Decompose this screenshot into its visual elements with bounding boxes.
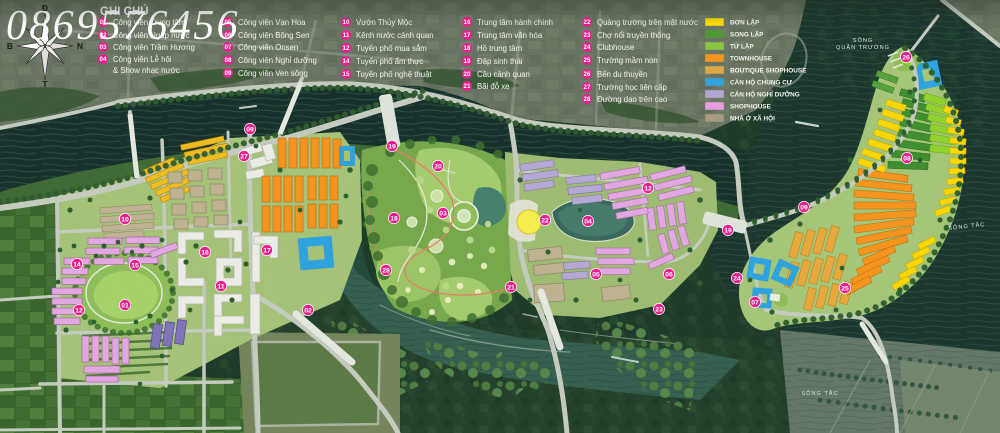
svg-text:QUẬN TRƯỜNG: QUẬN TRƯỜNG xyxy=(836,44,890,51)
svg-text:18: 18 xyxy=(390,216,398,223)
svg-text:Tuyến phố nghệ thuật: Tuyến phố nghệ thuật xyxy=(356,70,432,79)
svg-text:12: 12 xyxy=(644,186,652,193)
svg-text:06: 06 xyxy=(665,272,673,279)
svg-text:21: 21 xyxy=(507,285,515,292)
svg-text:04: 04 xyxy=(100,56,107,63)
svg-text:12: 12 xyxy=(75,308,83,315)
svg-text:14: 14 xyxy=(343,58,350,65)
svg-text:20: 20 xyxy=(464,71,471,78)
svg-text:26: 26 xyxy=(584,71,591,78)
svg-text:SONG LẬP: SONG LẬP xyxy=(730,30,764,39)
svg-text:24: 24 xyxy=(733,276,741,283)
svg-text:Công viên Ven sông: Công viên Ven sông xyxy=(238,69,308,78)
svg-text:Công viên Nghỉ dưỡng: Công viên Nghỉ dưỡng xyxy=(238,56,317,65)
svg-text:NHÀ Ở XÃ HỘI: NHÀ Ở XÃ HỘI xyxy=(730,114,775,123)
svg-text:Đập sinh thái: Đập sinh thái xyxy=(477,57,523,66)
svg-text:Chợ nổi truyền thống: Chợ nổi truyền thống xyxy=(597,31,670,40)
svg-text:CĂN HỘ CHUNG CƯ: CĂN HỘ CHUNG CƯ xyxy=(730,78,793,87)
svg-text:09: 09 xyxy=(800,205,808,212)
svg-text:14: 14 xyxy=(73,262,81,269)
svg-text:Tuyến phố ẩm thực: Tuyến phố ẩm thực xyxy=(356,57,423,66)
svg-text:09: 09 xyxy=(246,127,254,134)
svg-text:Trường mầm non: Trường mầm non xyxy=(597,56,658,65)
svg-text:10: 10 xyxy=(121,217,129,224)
svg-text:23: 23 xyxy=(655,307,663,314)
svg-text:T: T xyxy=(42,79,48,89)
svg-text:Hồ trung tâm: Hồ trung tâm xyxy=(477,44,522,53)
svg-text:Trường học liên cấp: Trường học liên cấp xyxy=(597,83,668,92)
svg-text:TỨ LẬP: TỨ LẬP xyxy=(730,42,754,51)
svg-text:09: 09 xyxy=(225,70,232,77)
svg-text:08: 08 xyxy=(225,57,232,64)
svg-text:Cầu cảnh quan: Cầu cảnh quan xyxy=(477,70,530,79)
svg-text:27: 27 xyxy=(240,154,248,161)
svg-text:BOUTIQUE SHOPHOUSE: BOUTIQUE SHOPHOUSE xyxy=(730,68,807,75)
svg-text:28: 28 xyxy=(382,268,390,275)
svg-text:07: 07 xyxy=(751,300,759,307)
svg-text:SÔNG TẮC: SÔNG TẮC xyxy=(801,389,838,397)
svg-text:11: 11 xyxy=(217,284,224,291)
svg-text:16: 16 xyxy=(201,250,209,257)
svg-text:SHOPHOUSE: SHOPHOUSE xyxy=(730,104,772,111)
svg-text:17: 17 xyxy=(263,248,271,255)
svg-text:08: 08 xyxy=(903,156,911,163)
svg-text:25: 25 xyxy=(841,286,849,293)
svg-text:18: 18 xyxy=(464,45,471,52)
svg-text:17: 17 xyxy=(464,32,471,39)
svg-text:& Show nhạc nước: & Show nhạc nước xyxy=(113,66,180,75)
svg-text:Công viên Lễ hội: Công viên Lễ hội xyxy=(113,55,172,64)
svg-text:Trung tâm văn hóa: Trung tâm văn hóa xyxy=(477,31,543,40)
svg-text:15: 15 xyxy=(343,71,350,78)
svg-text:Bãi đỗ xe: Bãi đỗ xe xyxy=(477,82,510,91)
svg-text:01: 01 xyxy=(121,303,129,310)
svg-text:19: 19 xyxy=(724,228,732,235)
svg-text:11: 11 xyxy=(343,32,350,39)
svg-text:Công viên Bông Sen: Công viên Bông Sen xyxy=(238,31,310,40)
svg-text:03: 03 xyxy=(439,211,447,218)
svg-text:24: 24 xyxy=(584,44,591,51)
svg-text:19: 19 xyxy=(464,58,471,65)
svg-text:22: 22 xyxy=(541,218,549,225)
svg-text:04: 04 xyxy=(584,219,592,226)
svg-text:20: 20 xyxy=(434,164,442,171)
svg-text:27: 27 xyxy=(584,84,591,91)
svg-text:Clubhouse: Clubhouse xyxy=(597,43,634,52)
svg-text:23: 23 xyxy=(584,32,591,39)
svg-text:TOWNHOUSE: TOWNHOUSE xyxy=(730,56,773,63)
svg-text:Công viên Onsen: Công viên Onsen xyxy=(238,43,298,52)
svg-text:Tuyến phố mua sắm: Tuyến phố mua sắm xyxy=(356,44,427,53)
svg-text:15: 15 xyxy=(131,263,139,270)
svg-text:Bến du thuyền: Bến du thuyền xyxy=(597,70,647,79)
svg-text:SÔNG: SÔNG xyxy=(853,37,873,44)
svg-text:Kênh nước cảnh quan: Kênh nước cảnh quan xyxy=(356,31,434,40)
svg-text:05: 05 xyxy=(592,272,600,279)
svg-text:12: 12 xyxy=(343,45,350,52)
svg-text:25: 25 xyxy=(584,57,591,64)
svg-text:Đường dạo trên cao: Đường dạo trên cao xyxy=(597,95,668,104)
svg-text:CĂN HỘ NGHỈ DƯỠNG: CĂN HỘ NGHỈ DƯỠNG xyxy=(730,90,800,99)
svg-text:02: 02 xyxy=(304,308,312,315)
svg-text:21: 21 xyxy=(464,83,471,90)
svg-text:19: 19 xyxy=(388,144,396,151)
svg-text:28: 28 xyxy=(584,96,591,103)
svg-text:26: 26 xyxy=(902,55,910,62)
